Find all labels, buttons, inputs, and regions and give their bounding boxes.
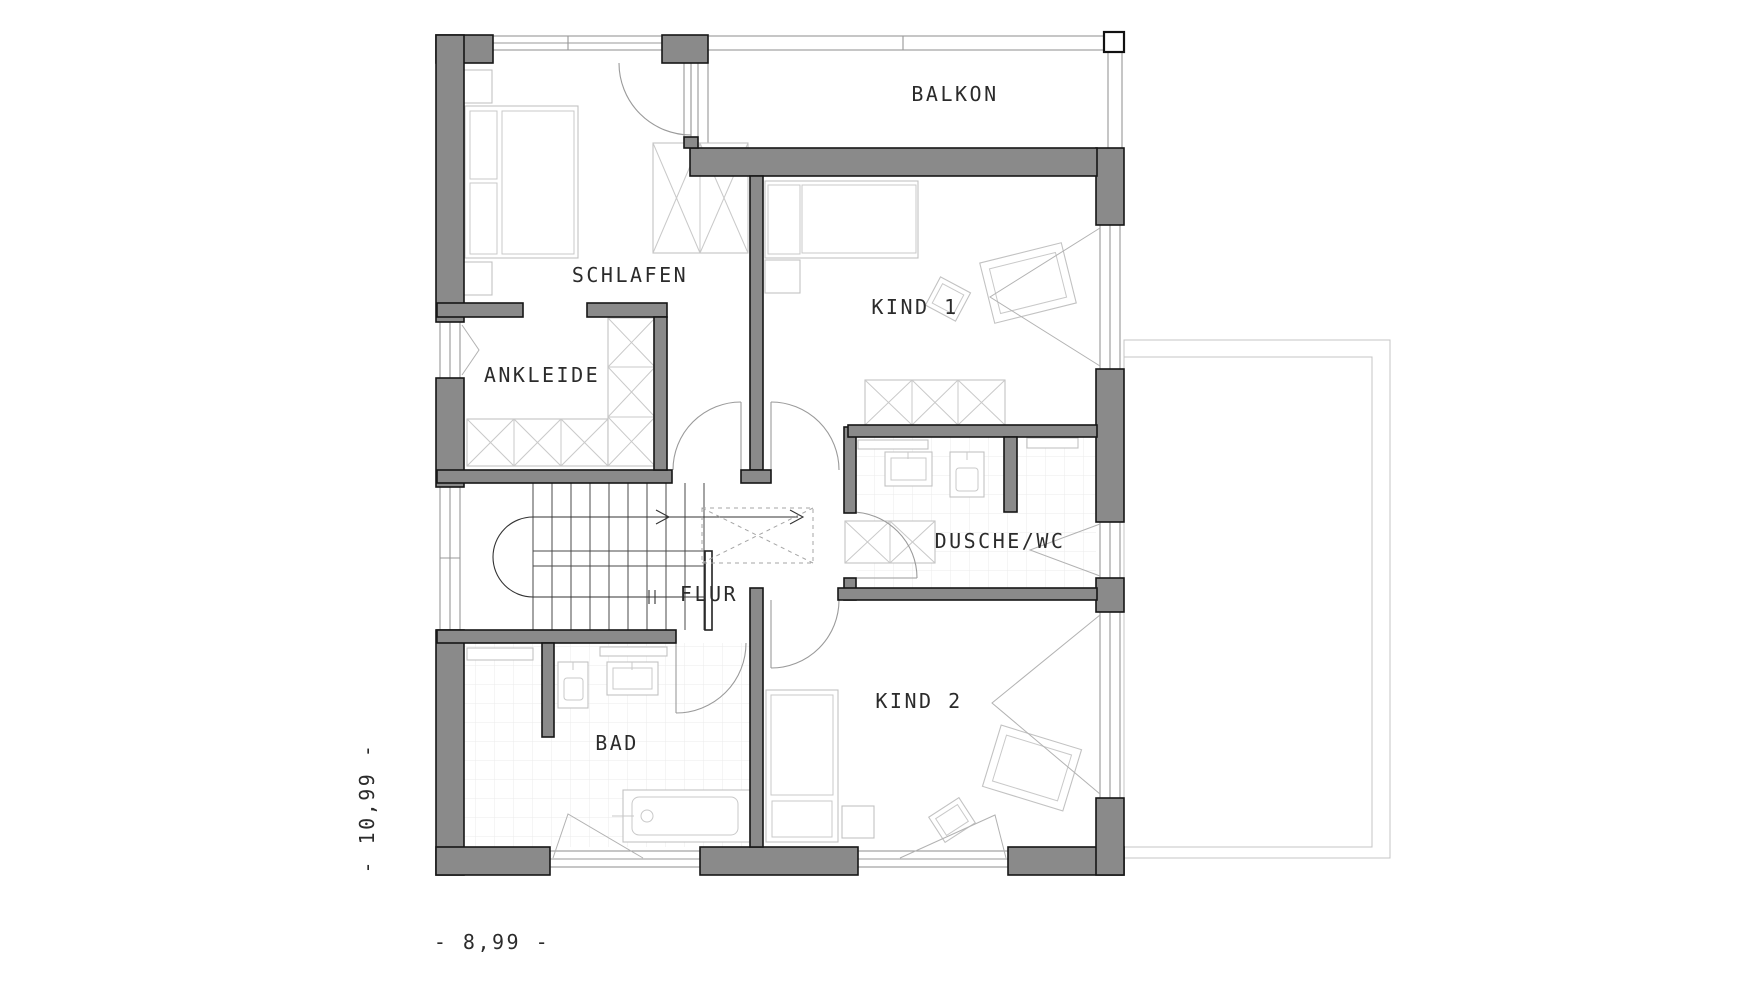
- single-bed-icon: [766, 690, 874, 842]
- shower-icon: [467, 648, 533, 660]
- room-label-bad: BAD: [595, 731, 639, 755]
- bathtub-icon: [612, 790, 750, 842]
- shelf-icon: [600, 647, 667, 656]
- cabinet-icon: [845, 521, 935, 563]
- double-bed-icon: [455, 70, 578, 295]
- floor-plan-drawing: BALKON SCHLAFEN KIND 1 ANKLEIDE DUSCHE/W…: [0, 0, 1739, 1000]
- shower-bench-icon: [1027, 438, 1078, 448]
- washbasin-icon: [607, 662, 658, 695]
- terrace-outline-icon: [1124, 340, 1390, 858]
- skylight-dashed-icon: [702, 508, 813, 563]
- desk-icon: [980, 243, 1077, 323]
- chair-icon: [929, 798, 976, 843]
- room-label-flur: FLUR: [680, 582, 738, 606]
- shelf-icon: [858, 440, 928, 449]
- wardrobe-icon: [467, 318, 655, 466]
- single-bed-icon: [765, 181, 918, 293]
- washbasin-icon: [885, 452, 932, 486]
- wardrobe-icon: [865, 380, 1005, 425]
- toilet-icon: [558, 662, 588, 708]
- room-label-schlafen: SCHLAFEN: [572, 263, 688, 287]
- nightstand-icon: [765, 260, 800, 293]
- balcony-post-icon: [1104, 32, 1124, 52]
- dimension-width: - 8,99 -: [434, 930, 550, 954]
- room-label-kind2: KIND 2: [875, 689, 962, 713]
- toilet-icon: [950, 452, 984, 497]
- floor-plan: BALKON SCHLAFEN KIND 1 ANKLEIDE DUSCHE/W…: [0, 0, 1739, 1000]
- room-label-balkon: BALKON: [911, 82, 998, 106]
- room-label-ankleide: ANKLEIDE: [484, 363, 600, 387]
- dimension-height: - 10,99 -: [355, 743, 379, 874]
- desk-icon: [982, 725, 1081, 811]
- nightstand-icon: [842, 806, 874, 838]
- room-label-kind1: KIND 1: [871, 295, 958, 319]
- room-label-dusche-wc: DUSCHE/WC: [935, 529, 1066, 553]
